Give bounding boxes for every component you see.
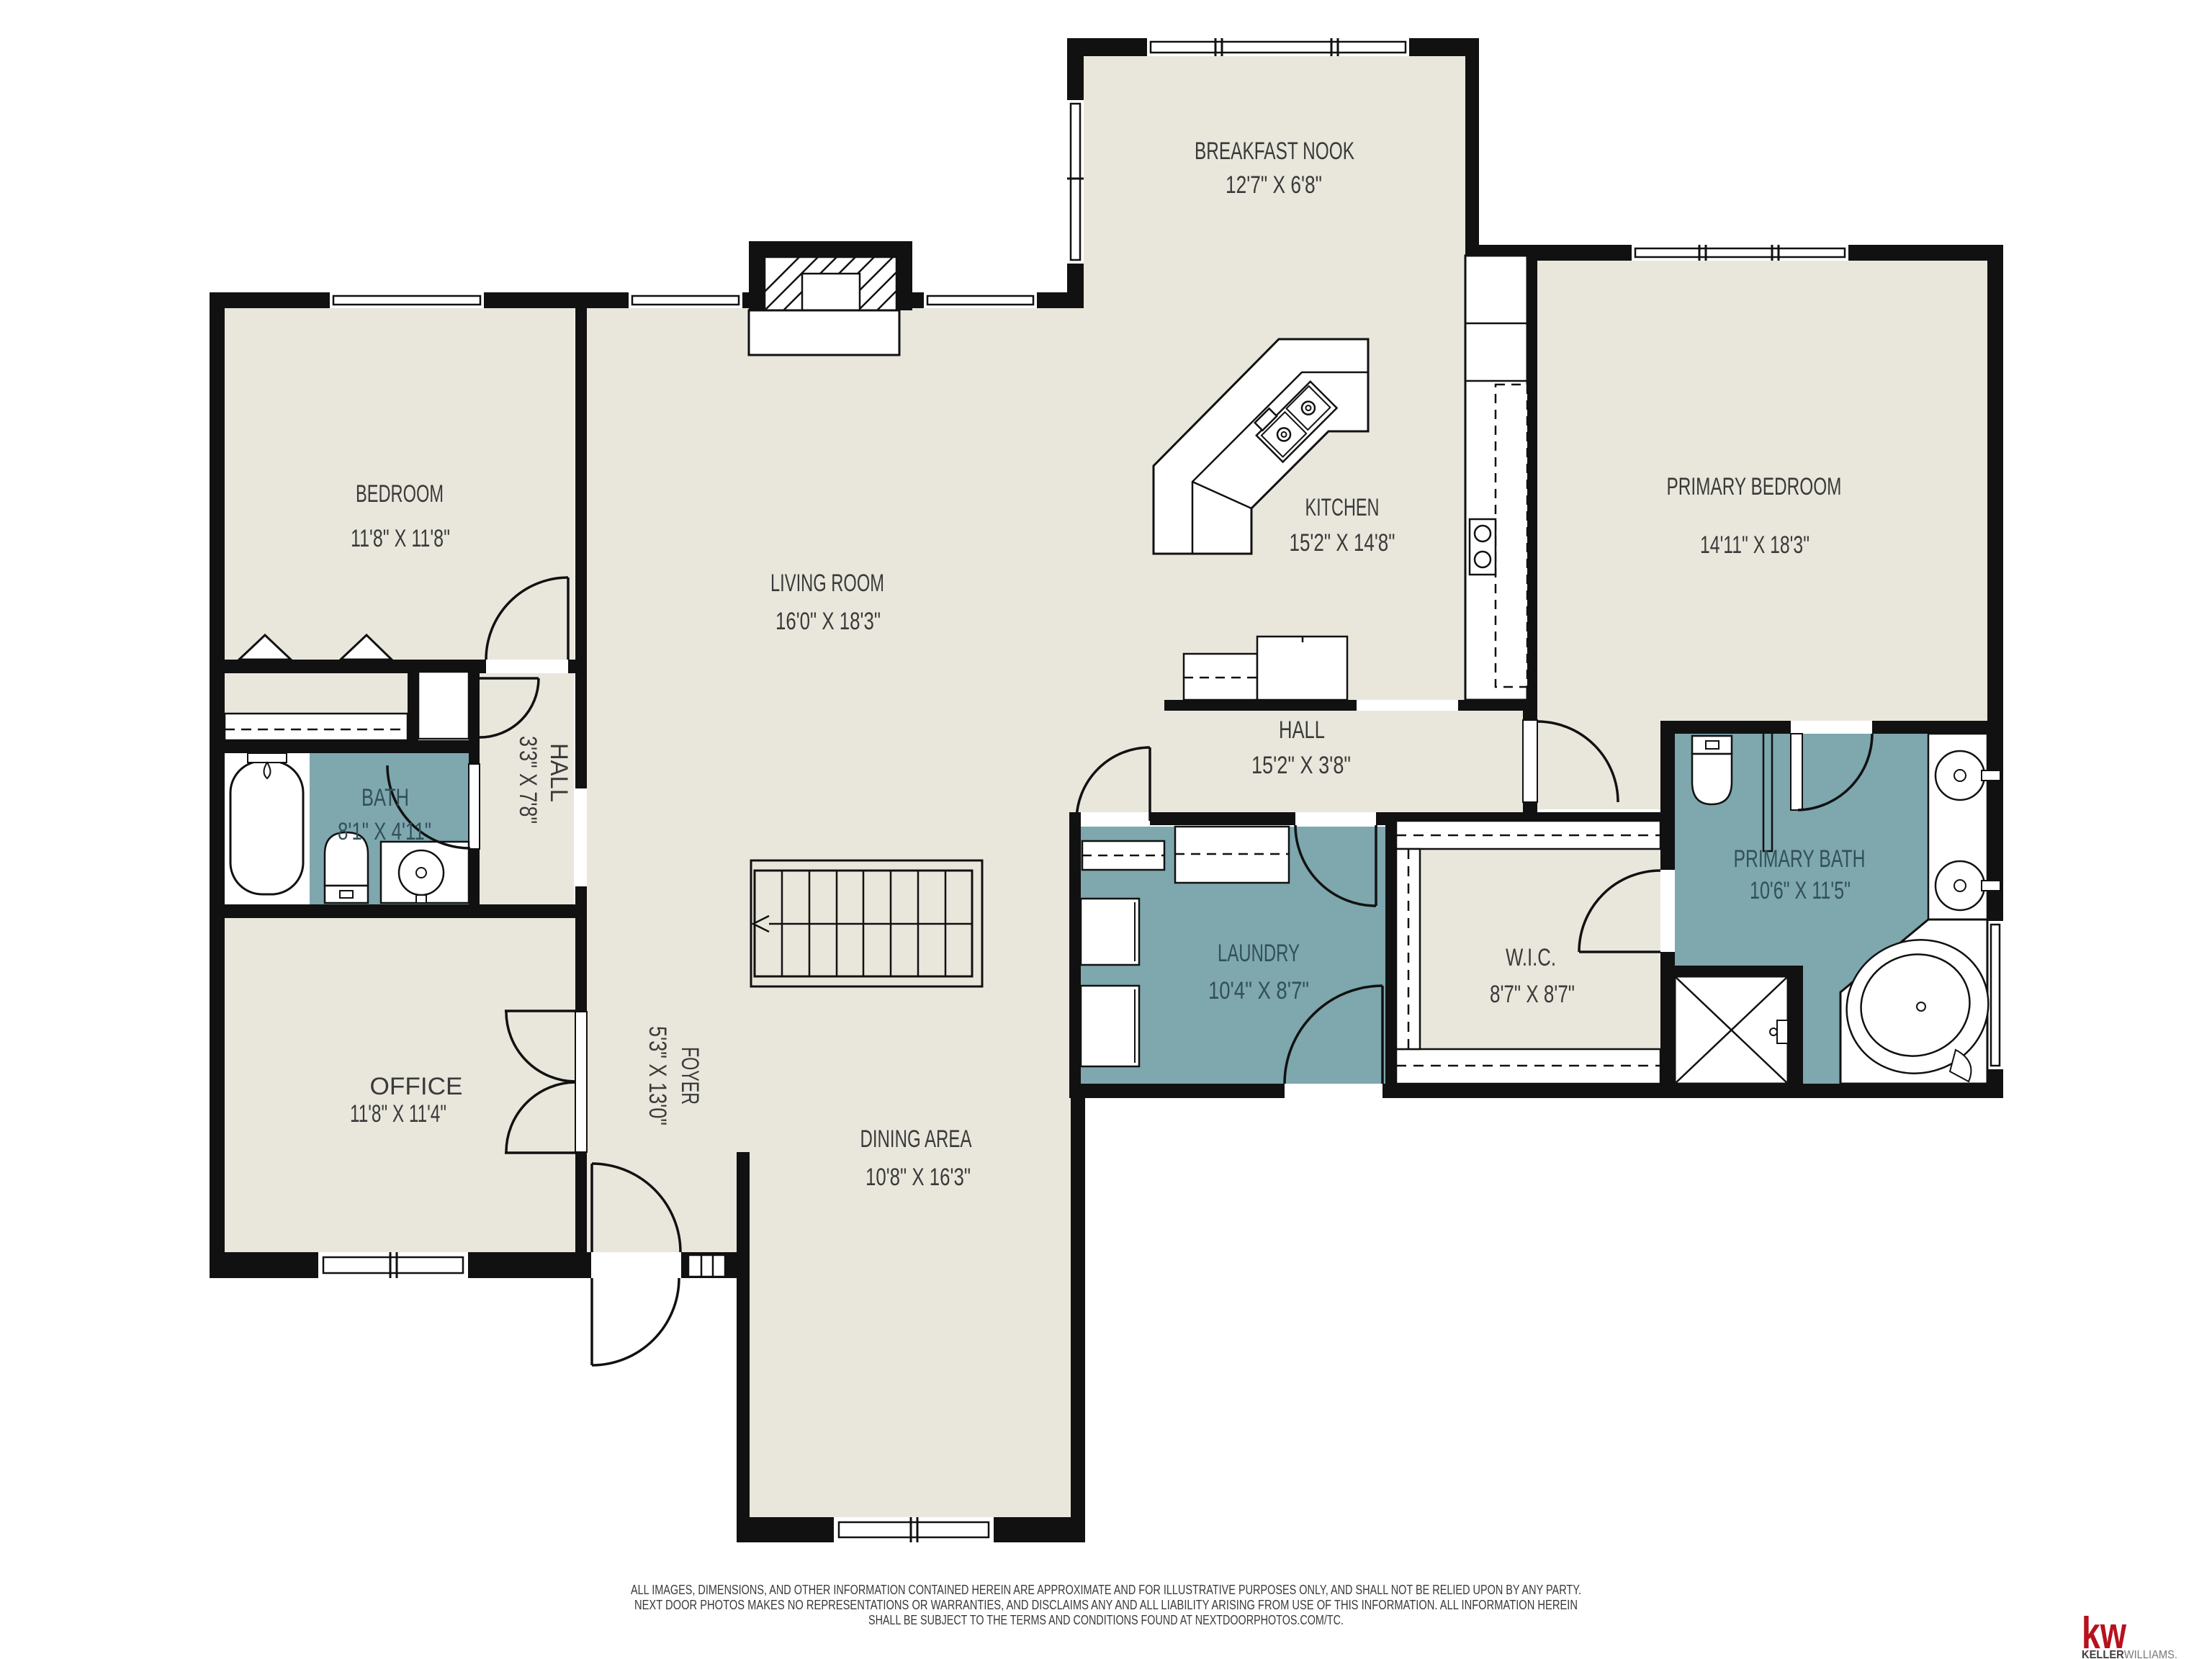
svg-text:8'7" X 8'7": 8'7" X 8'7" (1490, 981, 1575, 1008)
svg-text:15'2" X 14'8": 15'2" X 14'8" (1290, 529, 1395, 557)
svg-text:OFFICE: OFFICE (370, 1073, 463, 1100)
svg-text:12'7" X 6'8": 12'7" X 6'8" (1226, 171, 1322, 199)
svg-text:5'3" X 13'0": 5'3" X 13'0" (644, 1026, 671, 1125)
svg-text:PRIMARY BEDROOM: PRIMARY BEDROOM (1667, 473, 1842, 500)
svg-text:BREAKFAST NOOK: BREAKFAST NOOK (1195, 138, 1354, 165)
svg-text:SHALL BE SUBJECT TO THE TERMS: SHALL BE SUBJECT TO THE TERMS AND CONDIT… (868, 1612, 1344, 1627)
svg-text:LIVING ROOM: LIVING ROOM (770, 570, 884, 597)
svg-text:15'2" X 3'8": 15'2" X 3'8" (1251, 752, 1351, 779)
svg-text:11'8" X 11'8": 11'8" X 11'8" (351, 525, 450, 552)
svg-text:10'4" X 8'7": 10'4" X 8'7" (1208, 977, 1309, 1004)
svg-text:BATH: BATH (361, 784, 409, 811)
svg-text:ALL IMAGES, DIMENSIONS, AND OT: ALL IMAGES, DIMENSIONS, AND OTHER INFORM… (631, 1582, 1581, 1597)
svg-text:10'6" X 11'5": 10'6" X 11'5" (1750, 877, 1851, 904)
svg-text:HALL: HALL (545, 743, 572, 802)
svg-text:BEDROOM: BEDROOM (356, 480, 444, 508)
svg-text:FOYER: FOYER (676, 1047, 703, 1105)
svg-text:8'1" X 4'11": 8'1" X 4'11" (338, 818, 431, 845)
svg-text:W.I.C.: W.I.C. (1506, 944, 1556, 971)
svg-text:16'0" X 18'3": 16'0" X 18'3" (775, 608, 881, 635)
svg-text:11'8" X 11'4": 11'8" X 11'4" (350, 1100, 446, 1128)
svg-text:KITCHEN: KITCHEN (1305, 494, 1380, 521)
svg-text:14'11" X 18'3": 14'11" X 18'3" (1700, 531, 1809, 559)
svg-text:PRIMARY BATH: PRIMARY BATH (1734, 845, 1866, 873)
svg-text:10'8" X 16'3": 10'8" X 16'3" (866, 1164, 971, 1191)
svg-text:3'3" X 7'8": 3'3" X 7'8" (514, 736, 541, 824)
svg-text:LAUNDRY: LAUNDRY (1218, 940, 1300, 967)
svg-text:KELLERWILLIAMS.: KELLERWILLIAMS. (2082, 1649, 2177, 1659)
svg-text:NEXT DOOR PHOTOS MAKES NO REPR: NEXT DOOR PHOTOS MAKES NO REPRESENTATION… (634, 1597, 1578, 1612)
svg-text:HALL: HALL (1279, 716, 1325, 744)
svg-text:DINING AREA: DINING AREA (860, 1125, 972, 1153)
